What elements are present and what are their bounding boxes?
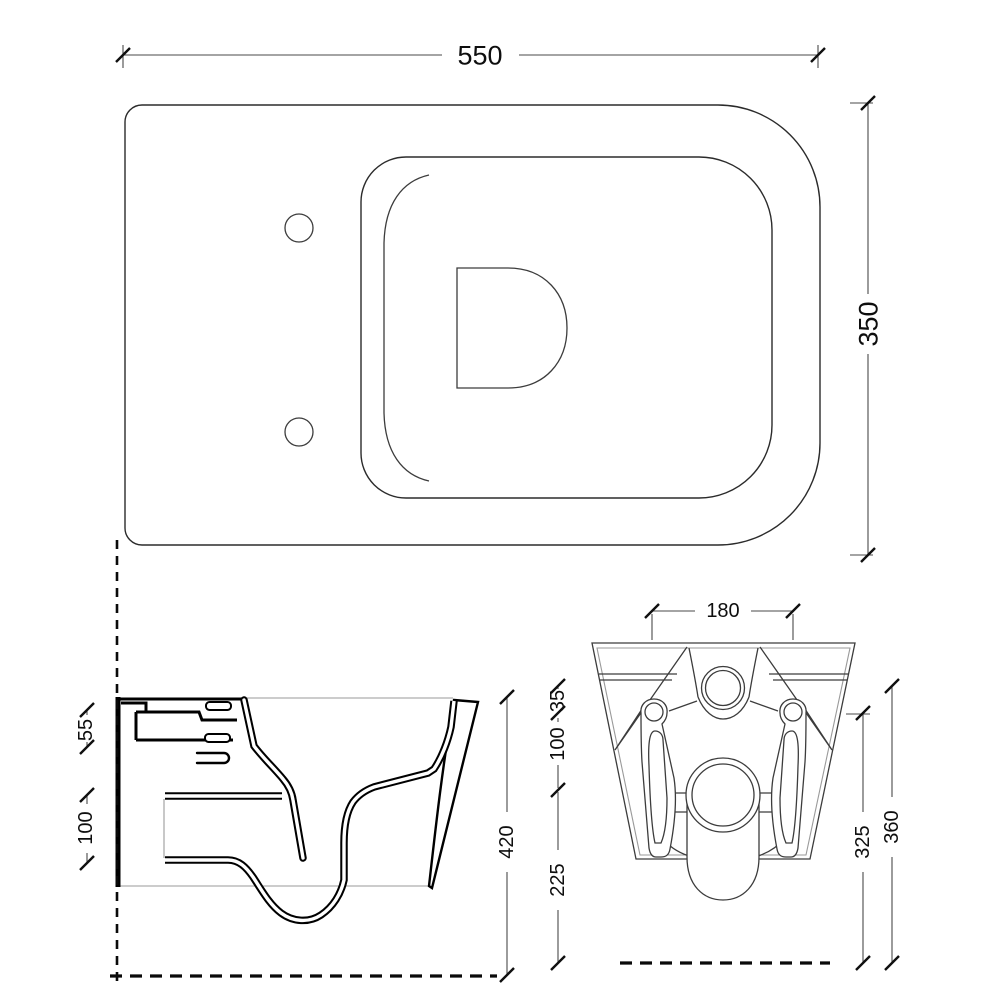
dim-rear-left-chain: 35 100 225 (547, 679, 569, 970)
seat-fixing-hole-bottom (285, 418, 313, 446)
technical-drawing-sheet: 550 350 (0, 0, 1000, 1000)
bowl-opening-d-shape (457, 268, 567, 388)
dim-plan-width: 550 (116, 40, 825, 70)
dim-label-350: 350 (853, 301, 883, 346)
rear-view (592, 643, 855, 963)
dim-rear-325: 325 (846, 706, 874, 970)
dim-side-420: 420 (496, 690, 518, 982)
dim-rear-180: 180 (645, 600, 800, 640)
dim-label-360: 360 (881, 810, 903, 843)
rim-lip-hairpin (197, 753, 229, 763)
outlet-hole-outer (686, 758, 760, 832)
dim-label-35: 35 (547, 690, 569, 712)
flush-channel-details (121, 702, 237, 763)
seat-fixing-hole-top (285, 214, 313, 242)
side-section-view (118, 697, 478, 920)
dim-plan-depth: 350 (850, 96, 883, 562)
inlet-hole-outer (702, 667, 745, 710)
dim-side-100: 100 (75, 788, 97, 870)
dim-label-325: 325 (852, 825, 874, 858)
dim-label-180: 180 (706, 600, 739, 622)
dim-label-420: 420 (496, 825, 518, 858)
plan-view (125, 105, 820, 545)
fixing-bracket-right (772, 699, 807, 857)
dim-label-55: 55 (75, 719, 97, 741)
dim-label-550: 550 (457, 40, 502, 70)
bowl-back-wall (244, 700, 303, 858)
dim-label-rear-100: 100 (547, 727, 569, 760)
fixing-bracket-left (641, 699, 676, 857)
dim-label-225: 225 (547, 863, 569, 896)
inner-rim-arc (384, 175, 429, 481)
dim-label-side-100: 100 (75, 811, 97, 844)
drawing-canvas: 550 350 (0, 0, 1000, 1000)
fixing-hole (645, 703, 663, 721)
flush-slot-lower (205, 734, 230, 742)
dim-side-55: 55 (75, 703, 97, 754)
plan-body-outline (125, 105, 820, 545)
flush-slot-upper (206, 702, 231, 710)
dim-rear-360: 360 (881, 679, 903, 970)
